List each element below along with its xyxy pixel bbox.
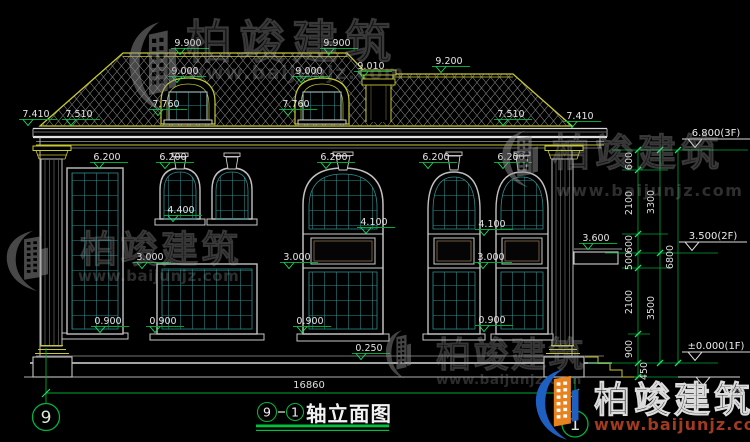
dim-label: 4.100 bbox=[360, 217, 387, 228]
watermark-brand: 柏竣建筑 bbox=[436, 335, 586, 376]
title-underline-thin bbox=[256, 430, 389, 431]
vdim-label: 450 bbox=[639, 362, 650, 380]
dim-label: 7.410 bbox=[22, 109, 49, 120]
elevation-mark-label: 3.500(2F) bbox=[689, 231, 738, 242]
watermark-url: www.baijunjz.com bbox=[187, 62, 405, 84]
watermark-url: www.baijunjz.com bbox=[78, 267, 239, 285]
baijun-logo-icon bbox=[386, 330, 411, 378]
dim-label: 7.510 bbox=[65, 109, 92, 120]
dim-marker-chevron bbox=[160, 163, 170, 169]
dim-label: 0.900 bbox=[296, 316, 323, 327]
elevation-mark-label: ±0.000(1F) bbox=[688, 341, 745, 352]
dim-label: 7.760 bbox=[282, 99, 309, 110]
watermark-reg-mark: (筑) bbox=[731, 386, 745, 396]
dim-marker-chevron bbox=[23, 120, 33, 126]
vdim-label: 500 bbox=[624, 252, 635, 270]
dim-marker-chevron bbox=[423, 163, 433, 169]
dim-marker-chevron bbox=[436, 67, 446, 73]
watermark-bottom-right-colored: 柏竣建筑 (筑) www.baijunjz.com bbox=[536, 369, 750, 440]
dim-label: 7.410 bbox=[566, 111, 593, 122]
dim-label: 3.000 bbox=[477, 252, 504, 263]
dim-label: 9.200 bbox=[435, 56, 462, 67]
dim-label: 6.200 bbox=[159, 152, 186, 163]
elevation-marker-triangle bbox=[685, 242, 699, 251]
watermark-url-colored: www.baijunjz.com bbox=[594, 415, 750, 434]
axis-bubble-left-label: 9 bbox=[41, 408, 52, 428]
cad-elevation-screenshot: 9 1 16860 9 1 轴立面图 9.9009.9009.0009.0009… bbox=[0, 0, 750, 442]
dim-marker-chevron bbox=[284, 263, 294, 269]
elevation-marker-triangle bbox=[688, 352, 702, 361]
central-arched-window bbox=[297, 152, 389, 341]
dim-marker-chevron bbox=[321, 163, 331, 169]
title-axis-start: 9 bbox=[263, 405, 271, 420]
vdim-label: 6800 bbox=[665, 245, 676, 269]
dim-label: 3.600 bbox=[582, 233, 609, 244]
dim-label: 4.400 bbox=[167, 205, 194, 216]
vdim-label: 3500 bbox=[646, 296, 657, 320]
overall-width-dimension: 16860 bbox=[293, 380, 325, 391]
vdim-label: 900 bbox=[624, 340, 635, 358]
vdim-label: 2100 bbox=[624, 290, 635, 314]
dim-label: 0.900 bbox=[94, 316, 121, 327]
dim-label: 6.200 bbox=[93, 152, 120, 163]
watermark-brand: 柏竣建筑 bbox=[186, 15, 398, 69]
dim-label: 7.510 bbox=[497, 109, 524, 120]
dim-label: 3.000 bbox=[283, 252, 310, 263]
watermark-brand: 柏竣建筑 bbox=[80, 228, 242, 271]
watermark-brand: 柏竣建筑 bbox=[552, 131, 724, 175]
side-canopy bbox=[574, 252, 618, 264]
title-axis-end: 1 bbox=[291, 405, 299, 420]
elevation-drawing: 9 1 16860 9 1 轴立面图 9.9009.9009.0009.0009… bbox=[0, 0, 750, 442]
dim-label: 4.100 bbox=[478, 219, 505, 230]
dim-label: 0.900 bbox=[478, 315, 505, 326]
dim-label: 6.200 bbox=[422, 152, 449, 163]
drawing-title: 9 1 轴立面图 bbox=[256, 402, 392, 431]
dim-label: 6.200 bbox=[320, 152, 347, 163]
watermark-url: www.baijunjz.com bbox=[556, 181, 743, 200]
vdim-label: 600 bbox=[624, 235, 635, 253]
title-text: 轴立面图 bbox=[306, 402, 392, 426]
dim-label: 0.250 bbox=[355, 343, 382, 354]
dim-label: 0.900 bbox=[149, 316, 176, 327]
dim-marker-chevron bbox=[356, 354, 366, 360]
entry-steps bbox=[585, 357, 638, 377]
title-underline-thick bbox=[256, 425, 389, 428]
